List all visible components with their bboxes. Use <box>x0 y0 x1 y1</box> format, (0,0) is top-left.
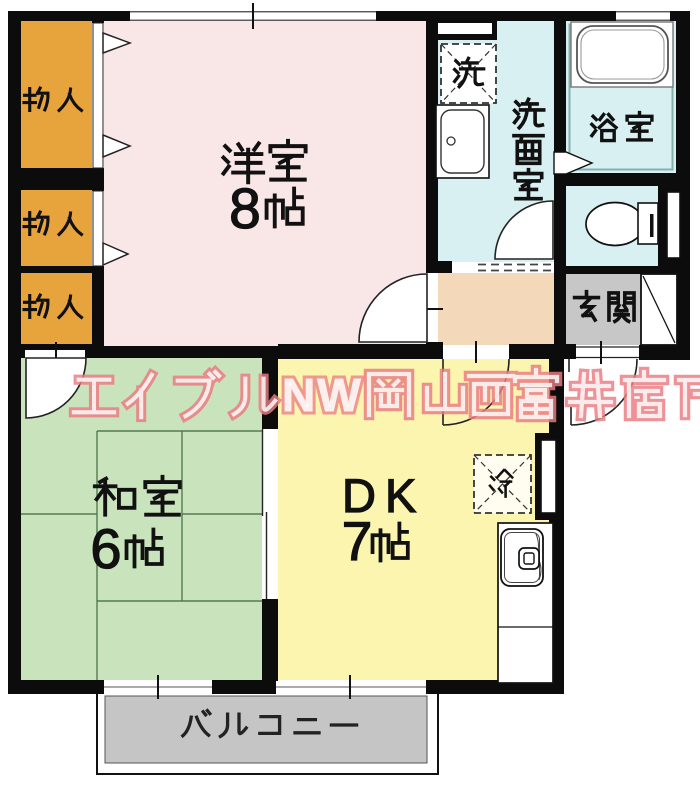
svg-text:7: 7 <box>342 510 373 572</box>
svg-text:NW: NW <box>282 369 363 421</box>
svg-text:6: 6 <box>90 517 121 580</box>
svg-text:8: 8 <box>229 177 261 241</box>
